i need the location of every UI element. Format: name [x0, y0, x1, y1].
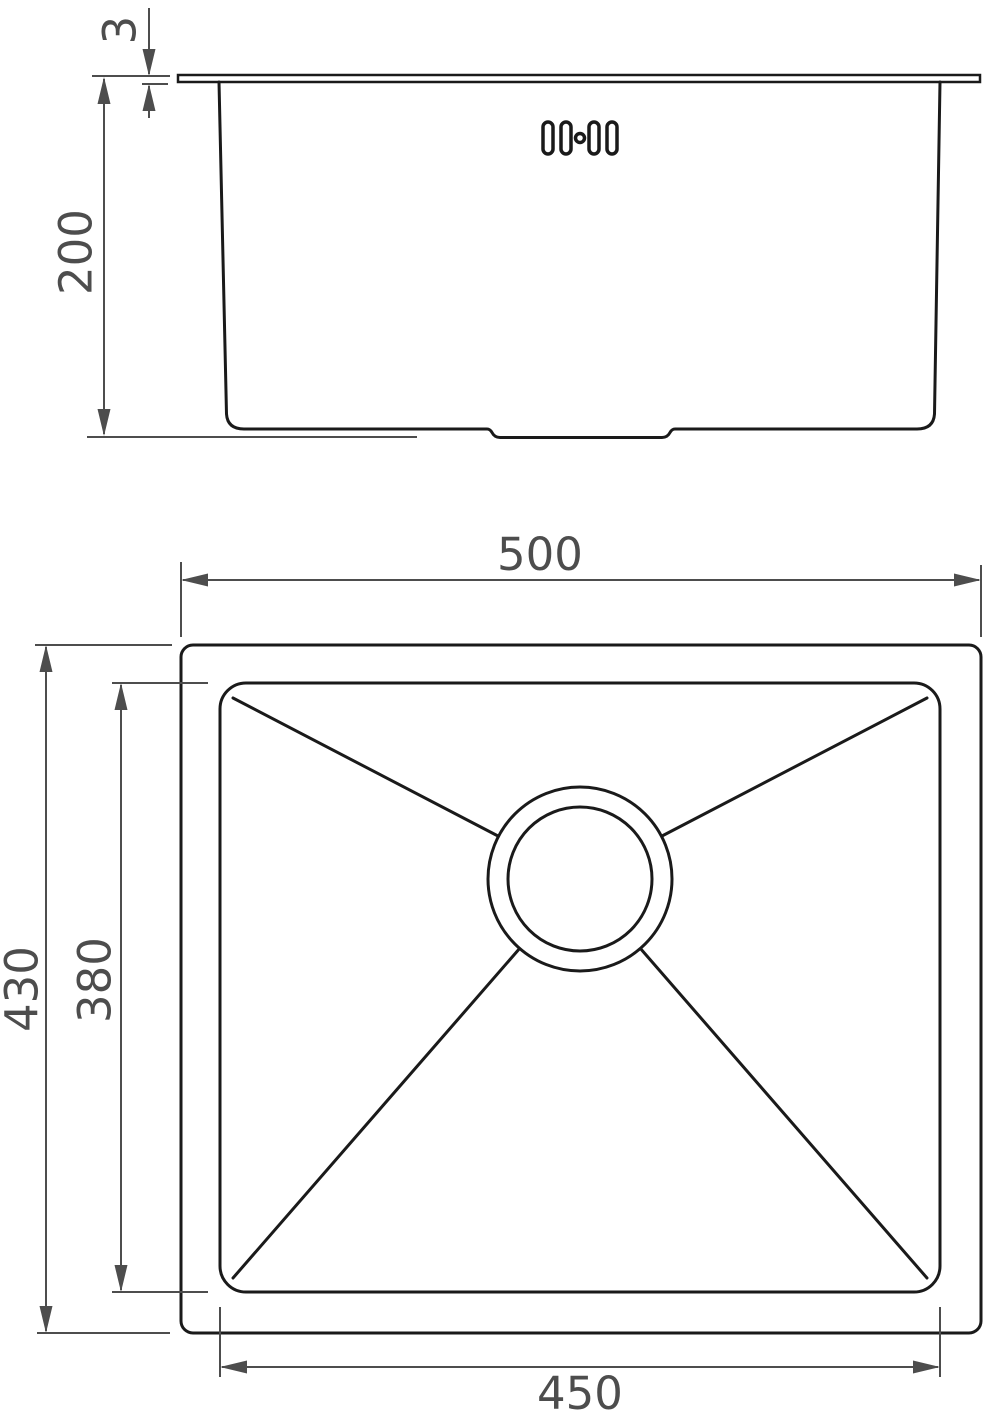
- arrowhead-up-icon: [98, 77, 111, 104]
- overflow-holes-icon: [543, 122, 617, 154]
- overflow-slot: [543, 122, 553, 154]
- rim-profile: [178, 75, 980, 82]
- arrowhead-left-icon: [181, 574, 208, 587]
- arrowhead-down-icon: [143, 49, 156, 76]
- dim-overall-width: 500: [181, 528, 981, 637]
- outer-rim-outline: [181, 645, 981, 1333]
- arrowhead-up-icon: [115, 683, 128, 710]
- dim-rim-thickness-label: 3: [94, 16, 147, 45]
- bowl-profile: [219, 82, 940, 438]
- arrowhead-right-icon: [913, 1361, 940, 1374]
- dim-bowl-width-label: 450: [537, 1367, 623, 1412]
- arrowhead-up-icon: [143, 84, 156, 111]
- sink-technical-drawing: 3 200: [0, 0, 984, 1412]
- drain-waste-icon: [488, 787, 672, 971]
- overflow-hole-dot: [576, 134, 585, 143]
- arrowhead-down-icon: [98, 409, 111, 436]
- arrowhead-down-icon: [40, 1306, 53, 1333]
- dim-bowl-inner-depth-label: 380: [69, 937, 122, 1023]
- bowl-crease-line: [662, 698, 927, 836]
- drain-outer-circle: [488, 787, 672, 971]
- arrowhead-left-icon: [220, 1361, 247, 1374]
- overflow-slot: [607, 122, 617, 154]
- dim-bowl-width: 450: [220, 1307, 940, 1412]
- bowl-crease-line: [640, 948, 927, 1278]
- dim-overall-width-label: 500: [497, 528, 583, 581]
- dim-bowl-depth: 200: [50, 77, 418, 437]
- arrowhead-down-icon: [115, 1265, 128, 1292]
- overflow-slot: [589, 122, 599, 154]
- bowl-crease-line: [233, 948, 520, 1278]
- arrowhead-up-icon: [40, 645, 53, 672]
- arrowhead-right-icon: [954, 574, 981, 587]
- dim-bowl-inner-depth: 380: [69, 683, 209, 1292]
- overflow-slot: [561, 122, 571, 154]
- bowl-outline: [220, 683, 940, 1292]
- front-elevation-view: 3 200: [50, 8, 981, 438]
- plan-view: 500 430 380 450: [0, 528, 981, 1412]
- drawing-sheet: 3 200: [0, 0, 984, 1412]
- dim-overall-depth-label: 430: [0, 946, 49, 1032]
- bowl-crease-line: [233, 698, 498, 836]
- dim-bowl-depth-label: 200: [50, 209, 103, 295]
